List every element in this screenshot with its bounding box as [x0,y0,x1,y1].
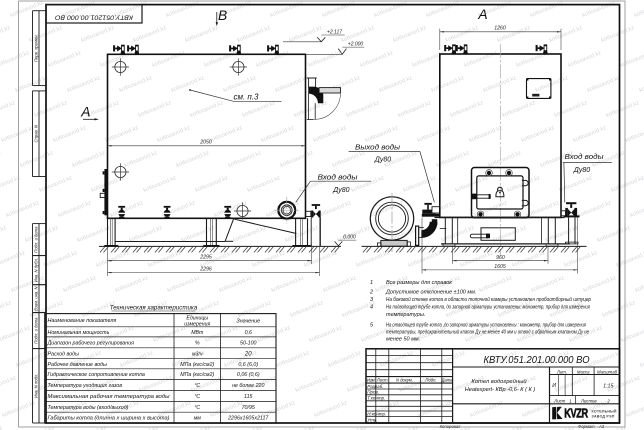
svg-text:Габариты котла (длинна х ширин: Габариты котла (длинна х ширина х высота… [48,416,170,422]
svg-text:kotlozavod.kz: kotlozavod.kz [502,100,537,119]
svg-text:kotlozavod.kz: kotlozavod.kz [205,325,240,344]
svg-text:kotlozavod.kz: kotlozavod.kz [247,175,282,194]
svg-text:2: 2 [369,289,373,295]
svg-text:kotlozavod.kz: kotlozavod.kz [195,175,230,194]
svg-text:kotlozavod.kz: kotlozavod.kz [21,425,56,430]
svg-text:kotlozavod.kz: kotlozavod.kz [308,50,343,69]
svg-text:kotlozavod.kz: kotlozavod.kz [0,50,30,69]
svg-text:kotlozavod.kz: kotlozavod.kz [309,325,344,344]
svg-text:Все размеры для справок: Все размеры для справок [386,280,452,286]
svg-text:Т.контр.: Т.контр. [367,396,385,401]
svg-text:Листов: Листов [580,398,597,403]
svg-text:5: 5 [370,322,374,328]
svg-text:kotlozavod.kz: kotlozavod.kz [177,425,212,430]
svg-text:Лит.: Лит. [556,369,567,374]
svg-text:kotlozavod.kz: kotlozavod.kz [322,0,357,19]
svg-text:kotlozavod.kz: kotlozavod.kz [630,200,644,219]
svg-text:Взам. инв. N: Взам. инв. N [33,285,38,310]
svg-text:Масштаб: Масштаб [597,369,618,374]
svg-text:kotlozavod.kz: kotlozavod.kz [436,150,471,169]
svg-text:В: В [218,8,227,23]
svg-text:kotlozavod.kz: kotlozavod.kz [393,25,428,44]
svg-text:1260: 1260 [494,25,506,31]
svg-text:kotlozavod.kz: kotlozavod.kz [53,125,88,144]
svg-text:КВТУ.051.201.00.000 ВО: КВТУ.051.201.00.000 ВО [484,355,590,366]
svg-text:kotlozavod.kz: kotlozavod.kz [261,125,296,144]
svg-text:1: 1 [569,398,572,403]
svg-text:kotlozavod.kz: kotlozavod.kz [408,250,443,269]
svg-text:Разраб.: Разраб. [367,384,383,389]
svg-text:kotlozavod.kz: kotlozavod.kz [44,250,79,269]
svg-text:kotlozavod.kz: kotlozavod.kz [635,275,644,294]
svg-text:kotlozavod.kz: kotlozavod.kz [228,150,263,169]
svg-text:Ду80: Ду80 [332,187,349,194]
svg-text:температуры.: температуры. [386,312,425,318]
svg-text:kotlozavod.kz: kotlozavod.kz [185,25,220,44]
svg-text:1605: 1605 [494,264,506,270]
svg-text:kotlozavod.kz: kotlozavod.kz [242,100,277,119]
svg-text:+2.117: +2.117 [327,30,342,36]
svg-text:kotlozavod.kz: kotlozavod.kz [257,325,292,344]
svg-text:kotlozavod.kz: kotlozavod.kz [289,25,324,44]
svg-text:kotlozavod.kz: kotlozavod.kz [332,150,367,169]
svg-text:kotlozavod.kz: kotlozavod.kz [385,425,420,430]
svg-text:kotlozavod.kz: kotlozavod.kz [281,425,316,430]
svg-text:А: А [477,7,487,22]
svg-text:kotlozavod.kz: kotlozavod.kz [583,275,618,294]
svg-text:kotlozavod.kz: kotlozavod.kz [625,125,644,144]
svg-text:kotlozavod.kz: kotlozavod.kz [541,425,576,430]
svg-text:Рабочее давление воды: Рабочее давление воды [48,362,107,368]
svg-text:960: 960 [496,255,505,261]
svg-text:КВТУ.051201.00.000 ВО: КВТУ.051201.00.000 ВО [55,13,133,20]
svg-text:kotlozavod.kz: kotlozavod.kz [110,200,145,219]
svg-text:kotlozavod.kz: kotlozavod.kz [318,200,353,219]
svg-text:kotlozavod.kz: kotlozavod.kz [0,325,31,344]
svg-text:kotlozavod.kz: kotlozavod.kz [417,125,452,144]
svg-text:Копировал: Копировал [440,424,461,429]
svg-text:kotlozavod.kz: kotlozavod.kz [626,400,644,419]
svg-text:kotlozavod.kz: kotlozavod.kz [526,200,561,219]
svg-text:kotlozavod.kz: kotlozavod.kz [0,250,26,269]
svg-text:kotlozavod.kz: kotlozavod.kz [469,125,504,144]
svg-text:kotlozavod.kz: kotlozavod.kz [148,250,183,269]
svg-text:kotlozavod.kz: kotlozavod.kz [333,425,368,430]
svg-text:kotlozavod.kz: kotlozavod.kz [431,75,466,94]
svg-text:kotlozavod.kz: kotlozavod.kz [190,100,225,119]
svg-text:Вход воды: Вход воды [565,152,605,161]
svg-text:kotlozavod.kz: kotlozavod.kz [72,150,107,169]
svg-text:70/95: 70/95 [242,405,255,411]
svg-text:50-100: 50-100 [240,340,257,346]
svg-text:Гидравлическое сопротивление к: Гидравлическое сопротивление котла [48,372,145,378]
svg-text:температуры, предохранительный: температуры, предохранительный клапан Ду… [386,328,589,335]
svg-text:kotlozavod.kz: kotlozavod.kz [39,175,74,194]
svg-text:Heatexpert- КВр -0,6- К ( К ): Heatexpert- КВр -0,6- К ( К ) [465,387,536,393]
svg-text:м3/ч: м3/ч [192,351,203,357]
svg-text:kotlozavod.kz: kotlozavod.kz [86,100,121,119]
svg-text:Вход воды: Вход воды [318,173,359,182]
svg-text:kotlozavod.kz: kotlozavod.kz [295,375,330,394]
svg-text:kotlozavod.kz: kotlozavod.kz [639,75,644,94]
svg-text:kotlozavod.kz: kotlozavod.kz [115,275,150,294]
svg-text:kotlozavod.kz: kotlozavod.kz [133,25,168,44]
svg-text:ЗАВОД РЭП: ЗАВОД РЭП [592,414,615,418]
svg-text:Номинальная мощность: Номинальная мощность [48,330,110,336]
svg-text:kotlozavod.kz: kotlozavod.kz [445,25,480,44]
svg-text:1: 1 [370,280,373,286]
svg-text:0.000: 0.000 [343,234,356,240]
svg-text:115: 115 [244,394,252,400]
svg-text:kotlozavod.kz: kotlozavod.kz [0,25,11,44]
svg-text:1:15: 1:15 [603,383,613,389]
svg-text:kotlozavod.kz: kotlozavod.kz [20,150,55,169]
svg-text:kotlozavod.kz: kotlozavod.kz [152,50,187,69]
svg-text:kotlozavod.kz: kotlozavod.kz [237,25,272,44]
svg-text:°С: °С [194,383,200,389]
svg-text:kotlozavod.kz: kotlozavod.kz [167,275,202,294]
svg-text:Формат: Формат [578,424,595,429]
svg-text:kotlozavod.kz: kotlozavod.kz [25,225,60,244]
svg-text:Температура уходящих газов: Температура уходящих газов [48,383,123,389]
svg-text:kotlozavod.kz: kotlozavod.kz [606,100,641,119]
svg-text:kotlozavod.kz: kotlozavod.kz [488,150,523,169]
svg-text:kotlozavod.kz: kotlozavod.kz [597,225,632,244]
svg-text:мм: мм [194,416,202,422]
svg-text:Пров.: Пров. [367,390,379,395]
svg-text:kotlozavod.kz: kotlozavod.kz [271,275,306,294]
svg-text:КОТЕЛЬНЫЙ: КОТЕЛЬНЫЙ [592,409,617,413]
svg-text:менее 50 мм.: менее 50 мм. [386,336,420,342]
svg-text:Выход воды: Выход воды [355,142,401,151]
svg-text:kotlozavod.kz: kotlozavod.kz [374,0,409,19]
svg-text:kotlozavod.kz: kotlozavod.kz [214,200,249,219]
svg-text:МПа (кгс/см2): МПа (кгс/см2) [180,362,214,368]
svg-text:kotlozavod.kz: kotlozavod.kz [432,350,467,369]
svg-text:kotlozavod.kz: kotlozavod.kz [238,300,273,319]
svg-text:kotlozavod.kz: kotlozavod.kz [129,225,164,244]
svg-text:Диапазон рабочего регулировани: Диапазон рабочего регулирования [47,340,135,346]
svg-text:На боковой стенке котла в обла: На боковой стенке котла в области топочн… [386,296,591,303]
svg-text:Инв. N дубл.: Инв. N дубл. [33,258,38,282]
svg-text:kotlozavod.kz: kotlozavod.kz [1,125,36,144]
svg-text:kotlozavod.kz: kotlozavod.kz [412,50,447,69]
svg-text:kotlozavod.kz: kotlozavod.kz [314,400,349,419]
svg-text:kotlozavod.kz: kotlozavod.kz [512,250,547,269]
svg-text:kotlozavod.kz: kotlozavod.kz [460,250,495,269]
svg-text:kotlozavod.kz: kotlozavod.kz [276,350,311,369]
svg-text:На подводящей трубе котла, д: На подводящей трубе котла, до запорной а… [386,303,590,310]
svg-text:kotlozavod.kz: kotlozavod.kz [418,400,453,419]
svg-text:kotlozavod.kz: kotlozavod.kz [100,50,135,69]
svg-text:Ду80: Ду80 [374,157,391,164]
svg-text:kotlozavod.kz: kotlozavod.kz [522,400,557,419]
svg-text:Дата: Дата [440,378,453,383]
svg-text:kotlozavod.kz: kotlozavod.kz [464,50,499,69]
svg-text:kotlozavod.kz: kotlozavod.kz [568,50,603,69]
svg-text:kotlozavod.kz: kotlozavod.kz [470,400,505,419]
svg-text:kotlozavod.kz: kotlozavod.kz [67,75,102,94]
svg-text:kotlozavod.kz: kotlozavod.kz [346,100,381,119]
svg-text:kotlozavod.kz: kotlozavod.kz [229,425,264,430]
svg-text:kotlozavod.kz: kotlozavod.kz [209,125,244,144]
svg-text:kotlozavod.kz: kotlozavod.kz [275,75,310,94]
svg-text:Допустимое отклонение ±100 мм: Допустимое отклонение ±100 мм. [385,289,476,295]
svg-text:kotlozavod.kz: kotlozavod.kz [219,275,254,294]
svg-text:kotlozavod.kz: kotlozavod.kz [593,425,628,430]
svg-text:kotlozavod.kz: kotlozavod.kz [270,0,305,19]
svg-text:И: И [552,383,556,389]
svg-text:kotlozavod.kz: kotlozavod.kz [479,275,514,294]
svg-text:Температура воды (вход/выход): Температура воды (вход/выход) [48,405,129,411]
svg-text:kotlozavod.kz: kotlozavod.kz [143,175,178,194]
svg-text:МВт: МВт [191,330,204,336]
svg-text:kotlozavod.kz: kotlozavod.kz [549,25,584,44]
svg-text:Лист: Лист [553,398,565,403]
svg-text:kotlozavod.kz: kotlozavod.kz [138,100,173,119]
svg-text:20: 20 [244,351,252,357]
svg-text:Наименование показателя: Наименование показателя [48,318,117,324]
svg-text:kotlozavod.kz: kotlozavod.kz [507,175,542,194]
svg-text:Максимальная рабочая температу: Максимальная рабочая температура воды [48,394,170,400]
svg-text:kotlozavod.kz: kotlozavod.kz [360,50,395,69]
svg-text:kotlozavod.kz: kotlozavod.kz [634,0,644,19]
svg-text:0,6 (6,0): 0,6 (6,0) [238,362,258,368]
svg-text:2296: 2296 [199,267,212,273]
svg-text:kotlozavod.kz: kotlozavod.kz [531,275,566,294]
svg-text:kotlozavod.kz: kotlozavod.kz [640,350,644,369]
svg-text:kotlozavod.kz: kotlozavod.kz [403,175,438,194]
svg-text:Подп. и дата: Подп. и дата [33,226,38,253]
svg-text:Техническая характеристика: Техническая характеристика [110,305,198,312]
svg-text:%: % [195,340,200,346]
svg-text:Н.контр.: Н.контр. [367,412,386,417]
svg-text:kotlozavod.kz: kotlozavod.kz [96,250,131,269]
svg-text:kotlozavod.kz: kotlozavod.kz [0,225,7,244]
svg-text:kotlozavod.kz: kotlozavod.kz [105,125,140,144]
svg-text:kotlozavod.kz: kotlozavod.kz [530,0,565,19]
svg-text:Подп. и дата: Подп. и дата [33,317,38,344]
svg-text:KVZR: KVZR [564,407,588,421]
svg-text:2295: 2295 [199,255,212,261]
svg-text:kotlozavod.kz: kotlozavod.kz [63,275,98,294]
svg-text:0,06 (0,6): 0,06 (0,6) [237,372,260,378]
svg-text:А3: А3 [598,424,605,429]
svg-text:Изм: Изм [367,378,375,383]
svg-text:kotlozavod.kz: kotlozavod.kz [0,100,16,119]
svg-text:см. п.3: см. п.3 [234,92,260,101]
svg-text:kotlozavod.kz: kotlozavod.kz [223,75,258,94]
svg-text:kotlozavod.kz: kotlozavod.kz [559,175,594,194]
svg-text:kotlozavod.kz: kotlozavod.kz [233,225,268,244]
svg-text:kotlozavod.kz: kotlozavod.kz [328,350,363,369]
svg-text:kotlozavod.kz: kotlozavod.kz [535,75,570,94]
svg-text:Масса: Масса [577,369,590,374]
svg-text:kotlozavod.kz: kotlozavod.kz [588,350,623,369]
svg-text:kotlozavod.kz: kotlozavod.kz [564,250,599,269]
svg-text:kotlozavod.kz: kotlozavod.kz [58,200,93,219]
svg-text:kotlozavod.kz: kotlozavod.kz [380,350,415,369]
svg-text:Подп.: Подп. [425,378,436,383]
svg-text:kotlozavod.kz: kotlozavod.kz [587,75,622,94]
svg-text:kotlozavod.kz: kotlozavod.kz [521,125,556,144]
svg-text:kotlozavod.kz: kotlozavod.kz [280,150,315,169]
svg-text:°С: °С [194,405,200,411]
svg-text:измерения: измерения [184,321,210,327]
svg-text:kotlozavod.kz: kotlozavod.kz [176,150,211,169]
svg-text:kotlozavod.kz: kotlozavod.kz [77,225,112,244]
svg-text:kotlozavod.kz: kotlozavod.kz [450,100,485,119]
svg-text:kotlozavod.kz: kotlozavod.kz [582,0,617,19]
svg-text:kotlozavod.kz: kotlozavod.kz [73,425,108,430]
svg-text:Справ. N: Справ. N [33,124,38,142]
svg-text:kotlozavod.kz: kotlozavod.kz [6,200,41,219]
svg-text:kotlozavod.kz: kotlozavod.kz [171,75,206,94]
svg-text:°С: °С [194,394,200,400]
svg-text:kotlozavod.kz: kotlozavod.kz [290,300,325,319]
svg-text:МПа (кгс/см2): МПа (кгс/см2) [180,372,214,378]
svg-text:2: 2 [606,398,610,403]
svg-text:kotlozavod.kz: kotlozavod.kz [0,175,21,194]
svg-text:kotlozavod.kz: kotlozavod.kz [573,125,608,144]
svg-text:Утв.: Утв. [367,418,377,423]
svg-text:kotlozavod.kz: kotlozavod.kz [356,250,391,269]
svg-text:2050: 2050 [199,140,212,146]
svg-text:kotlozavod.kz: kotlozavod.kz [426,0,461,19]
svg-text:kotlozavod.kz: kotlozavod.kz [578,200,613,219]
svg-text:kotlozavod.kz: kotlozavod.kz [379,75,414,94]
svg-text:kotlozavod.kz: kotlozavod.kz [153,325,188,344]
svg-text:Инв. N подл.: Инв. N подл. [33,374,38,398]
svg-text:2296х1605х2117: 2296х1605х2117 [227,416,269,422]
svg-text:kotlozavod.kz: kotlozavod.kz [81,25,116,44]
svg-text:kotlozavod.kz: kotlozavod.kz [489,425,524,430]
svg-text:kotlozavod.kz: kotlozavod.kz [285,225,320,244]
svg-text:kotlozavod.kz: kotlozavod.kz [0,150,2,169]
svg-text:kotlozavod.kz: kotlozavod.kz [181,225,216,244]
svg-text:kotlozavod.kz: kotlozavod.kz [554,100,589,119]
svg-text:kotlozavod.kz: kotlozavod.kz [48,50,83,69]
svg-text:kotlozavod.kz: kotlozavod.kz [398,100,433,119]
svg-text:Лист: Лист [376,378,388,383]
svg-text:kotlozavod.kz: kotlozavod.kz [125,425,160,430]
svg-text:kotlozavod.kz: kotlozavod.kz [166,0,201,19]
svg-text:Котел водогрейный: Котел водогрейный [471,378,527,385]
svg-text:kotlozavod.kz: kotlozavod.kz [124,150,159,169]
svg-text:+2.000: +2.000 [348,42,364,48]
svg-text:kotlozavod.kz: kotlozavod.kz [119,75,154,94]
svg-text:kotlozavod.kz: kotlozavod.kz [365,125,400,144]
svg-text:kotlozavod.kz: kotlozavod.kz [0,375,17,394]
svg-text:kotlozavod.kz: kotlozavod.kz [313,125,348,144]
svg-text:kotlozavod.kz: kotlozavod.kz [611,175,644,194]
svg-text:4: 4 [370,304,373,310]
svg-text:kotlozavod.kz: kotlozavod.kz [157,125,192,144]
svg-text:Значение: Значение [236,319,260,325]
svg-text:kotlozavod.kz: kotlozavod.kz [621,325,644,344]
svg-text:А: А [80,104,90,119]
svg-text:kotlozavod.kz: kotlozavod.kz [252,250,287,269]
svg-text:На отводящей трубе котла ,до з: На отводящей трубе котла ,до запорной ар… [386,321,586,328]
svg-text:kotlozavod.kz: kotlozavod.kz [620,50,644,69]
svg-text:kotlozavod.kz: kotlozavod.kz [120,350,155,369]
svg-text:N докум.: N докум. [396,378,413,383]
svg-text:kotlozavod.kz: kotlozavod.kz [0,300,12,319]
svg-text:kotlozavod.kz: kotlozavod.kz [601,25,636,44]
svg-text:0,6: 0,6 [245,330,252,336]
svg-text:Ду80: Ду80 [573,167,590,174]
svg-text:kotlozavod.kz: kotlozavod.kz [545,225,580,244]
svg-text:не более 220: не более 220 [232,383,264,389]
svg-text:kotlozavod.kz: kotlozavod.kz [0,425,3,430]
svg-text:kotlozavod.kz: kotlozavod.kz [304,250,339,269]
svg-text:Перв. примен.: Перв. примен. [33,34,38,62]
svg-text:kotlozavod.kz: kotlozavod.kz [323,275,358,294]
svg-text:kotlozavod.kz: kotlozavod.kz [483,75,518,94]
svg-text:Расход воды: Расход воды [48,351,79,357]
svg-text:kotlozavod.kz: kotlozavod.kz [256,50,291,69]
